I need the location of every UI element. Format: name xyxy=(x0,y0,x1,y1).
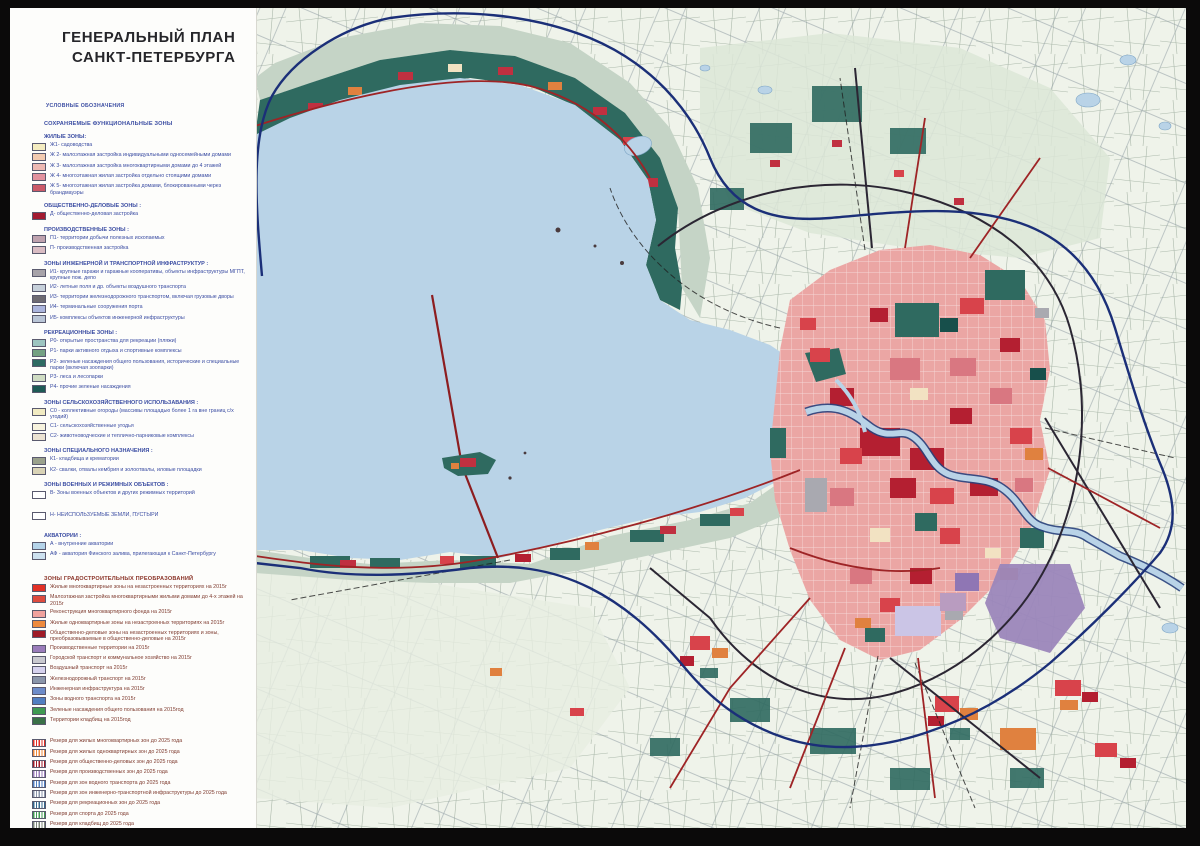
legend-item: Н- НЕИСПОЛЬЗУЕМЫЕ ЗЕМЛИ, ПУСТЫРИ xyxy=(32,512,248,521)
legend-swatch xyxy=(32,408,46,416)
legend-reserve-zones: Резерв для жилых многоквартирных зон до … xyxy=(10,738,256,828)
legend-item-label: Резерв для кладбищ до 2025 года xyxy=(50,821,134,828)
legend-swatch xyxy=(32,269,46,277)
legend-swatch xyxy=(32,697,46,705)
legend-swatch xyxy=(32,184,46,192)
legend-item-label: И1- крупные гаражи и гаражные кооператив… xyxy=(50,269,248,282)
legend-swatch xyxy=(32,433,46,441)
legend-item-label: И2- летные поля и др. объекты воздушного… xyxy=(50,284,186,291)
legend-item-label: Малоэтажная застройка многоквартирными ж… xyxy=(50,594,248,607)
legend-item: Резерв для рекреационных зон до 2025 год… xyxy=(32,800,248,809)
legend-item-label: И4- терминальные сооружения порта xyxy=(50,304,143,311)
legend-swatch xyxy=(32,666,46,674)
legend-group-title: ЖИЛЫЕ ЗОНЫ: xyxy=(44,134,246,140)
legend-item-label: П1- территории добычи полезных ископаемы… xyxy=(50,235,165,242)
legend-item: Резерв для зон водного транспорта до 202… xyxy=(32,780,248,789)
legend-item: С1- сельскохозяйственные угодья xyxy=(32,423,248,432)
legend-transformation-zones: Жилые многоквартирные зоны на незастроен… xyxy=(10,584,256,726)
legend-item: Производственные территории на 2015г xyxy=(32,645,248,654)
legend-swatch xyxy=(32,153,46,161)
legend-swatch xyxy=(32,749,46,757)
legend-group: ПРОИЗВОДСТВЕННЫЕ ЗОНЫ :П1- территории до… xyxy=(10,227,256,254)
legend-swatch xyxy=(32,212,46,220)
legend-swatch xyxy=(32,284,46,292)
legend-item: К1- кладбища и крематории xyxy=(32,456,248,465)
legend-item: Ж 3- малоэтажная застройка многоквартирн… xyxy=(32,163,248,172)
legend-swatch xyxy=(32,163,46,171)
legend-item-label: Ж 5- многоэтажная жилая застройка домами… xyxy=(50,183,248,196)
legend-item-label: Резерв для производственных зон до 2025 … xyxy=(50,769,168,776)
legend-item-label: И3- территории железнодорожного транспор… xyxy=(50,294,234,301)
legend-item: И1- крупные гаражи и гаражные кооператив… xyxy=(32,269,248,282)
legend-group: АКВАТОРИИ :А - внутренние акваторииАФ - … xyxy=(10,533,256,560)
legend-item-label: Общественно-деловые зоны на незастроенны… xyxy=(50,630,248,643)
legend-swatch xyxy=(32,457,46,465)
legend-swatch xyxy=(32,584,46,592)
legend-item: Резерв для жилых многоквартирных зон до … xyxy=(32,738,248,747)
legend-group-title: ЗОНЫ СПЕЦИАЛЬНОГО НАЗНАЧЕНИЯ : xyxy=(44,448,246,454)
legend-swatch xyxy=(32,739,46,747)
legend-item-label: С1- сельскохозяйственные угодья xyxy=(50,423,134,430)
legend-item: Резерв для жилых одноквартирных зон до 2… xyxy=(32,749,248,758)
legend-swatch xyxy=(32,676,46,684)
map-sheet: ГЕНЕРАЛЬНЫЙ ПЛАН САНКТ-ПЕТЕРБУРГА УСЛОВН… xyxy=(10,8,1186,828)
legend-swatch xyxy=(32,687,46,695)
legend-item: Малоэтажная застройка многоквартирными ж… xyxy=(32,594,248,607)
legend-item: Ж1- садоводства xyxy=(32,142,248,151)
legend-section1-title: СОХРАНЯЕМЫЕ ФУНКЦИОНАЛЬНЫЕ ЗОНЫ xyxy=(44,121,256,127)
legend-swatch xyxy=(32,645,46,653)
legend-group-title: ЗОНЫ ВОЕННЫХ И РЕЖИМНЫХ ОБЪЕКТОВ : xyxy=(44,482,246,488)
legend-group: ЗОНЫ СЕЛЬСКОХОЗЯЙСТВЕННОГО ИСПОЛЬЗАВАНИЯ… xyxy=(10,400,256,442)
legend-item: И2- летные поля и др. объекты воздушного… xyxy=(32,284,248,293)
legend-swatch xyxy=(32,595,46,603)
legend-item-label: Инженерная инфраструктура на 2015г xyxy=(50,686,145,693)
legend-item-label: Резерв для зон инженерно-транспортной ин… xyxy=(50,790,227,797)
legend-item: С0 - коллективные огороды (массивы площа… xyxy=(32,408,248,421)
legend-section2-title: ЗОНЫ ГРАДОСТРОИТЕЛЬНЫХ ПРЕОБРАЗОВАНИЙ xyxy=(44,576,256,582)
legend-functional-zones: ЖИЛЫЕ ЗОНЫ:Ж1- садоводстваЖ 2- малоэтажн… xyxy=(10,134,256,560)
legend-swatch xyxy=(32,143,46,151)
legend-item-label: Ж 3- малоэтажная застройка многоквартирн… xyxy=(50,163,221,170)
legend-item-label: Р4- прочие зеленые насаждения xyxy=(50,384,131,391)
legend-panel: ГЕНЕРАЛЬНЫЙ ПЛАН САНКТ-ПЕТЕРБУРГА УСЛОВН… xyxy=(10,8,257,828)
legend-group-title: ЗОНЫ СЕЛЬСКОХОЗЯЙСТВЕННОГО ИСПОЛЬЗАВАНИЯ… xyxy=(44,400,246,406)
legend-group-title: РЕКРЕАЦИОННЫЕ ЗОНЫ : xyxy=(44,330,246,336)
legend-swatch xyxy=(32,770,46,778)
legend-swatch xyxy=(32,295,46,303)
legend-item-label: А - внутренние акватории xyxy=(50,541,113,548)
legend-swatch xyxy=(32,630,46,638)
legend-item: Ж 5- многоэтажная жилая застройка домами… xyxy=(32,183,248,196)
legend-swatch xyxy=(32,610,46,618)
legend-item-label: П- производственная застройка xyxy=(50,245,128,252)
legend-item: Зоны водного транспорта на 2015г xyxy=(32,696,248,705)
map-title: ГЕНЕРАЛЬНЫЙ ПЛАН САНКТ-ПЕТЕРБУРГА xyxy=(62,28,248,67)
legend-swatch xyxy=(32,542,46,550)
legend-item: И3- территории железнодорожного транспор… xyxy=(32,294,248,303)
legend-swatch xyxy=(32,315,46,323)
scanned-master-plan: ГЕНЕРАЛЬНЫЙ ПЛАН САНКТ-ПЕТЕРБУРГА УСЛОВН… xyxy=(0,0,1200,846)
legend-swatch xyxy=(32,235,46,243)
map-title-line1: ГЕНЕРАЛЬНЫЙ ПЛАН xyxy=(62,28,248,48)
legend-group: ЗОНЫ ИНЖЕНЕРНОЙ И ТРАНСПОРТНОЙ ИНФРАСТРУ… xyxy=(10,261,256,323)
legend-item-label: С2- животноводческие и теплично-парников… xyxy=(50,433,194,440)
legend-item: Р1- парки активного отдыха и спортивные … xyxy=(32,348,248,357)
legend-group-title: ЗОНЫ ИНЖЕНЕРНОЙ И ТРАНСПОРТНОЙ ИНФРАСТРУ… xyxy=(44,261,246,267)
legend-group: ЗОНЫ СПЕЦИАЛЬНОГО НАЗНАЧЕНИЯ :К1- кладби… xyxy=(10,448,256,475)
legend-swatch xyxy=(32,173,46,181)
legend-item-label: К1- кладбища и крематории xyxy=(50,456,119,463)
legend-swatch xyxy=(32,801,46,809)
legend-item: Городской транспорт и коммунальное хозяй… xyxy=(32,655,248,664)
legend-item-label: Р2- зеленые насаждения общего пользовани… xyxy=(50,359,248,372)
legend-swatch xyxy=(32,780,46,788)
legend-item: Зеленые насаждения общего пользования на… xyxy=(32,707,248,716)
legend-group-title: АКВАТОРИИ : xyxy=(44,533,246,539)
legend-swatch xyxy=(32,359,46,367)
legend-item: Реконструкция многоквартирного фонда на … xyxy=(32,609,248,618)
legend-item-label: Зеленые насаждения общего пользования на… xyxy=(50,707,184,714)
legend-item-label: Резерв для спорта до 2025 года xyxy=(50,811,129,818)
legend-item-label: С0 - коллективные огороды (массивы площа… xyxy=(50,408,248,421)
legend-item: Железнодорожный транспорт на 2015г xyxy=(32,676,248,685)
legend-item-label: Резерв для рекреационных зон до 2025 год… xyxy=(50,800,160,807)
legend-item-label: Ж1- садоводства xyxy=(50,142,92,149)
legend-group: ЗОНЫ ВОЕННЫХ И РЕЖИМНЫХ ОБЪЕКТОВ :В- Зон… xyxy=(10,482,256,499)
legend-group: ОБЩЕСТВЕННО-ДЕЛОВЫЕ ЗОНЫ :Д- общественно… xyxy=(10,203,256,220)
legend-item-label: И5- комплексы объектов инженерной инфрас… xyxy=(50,315,185,322)
legend-item: С2- животноводческие и теплично-парников… xyxy=(32,433,248,442)
legend-item: Резерв для производственных зон до 2025 … xyxy=(32,769,248,778)
legend-group: Н- НЕИСПОЛЬЗУЕМЫЕ ЗЕМЛИ, ПУСТЫРИ xyxy=(10,512,256,521)
legend-swatch xyxy=(32,339,46,347)
legend-item-label: Воздушный транспорт на 2015г xyxy=(50,665,127,672)
legend-group: РЕКРЕАЦИОННЫЕ ЗОНЫ :Р0- открытые простра… xyxy=(10,330,256,392)
legend-item: Ж 2- малоэтажная застройка индивидуальны… xyxy=(32,152,248,161)
legend-swatch xyxy=(32,305,46,313)
legend-item: Воздушный транспорт на 2015г xyxy=(32,665,248,674)
legend-item-label: Железнодорожный транспорт на 2015г xyxy=(50,676,146,683)
legend-item: А - внутренние акватории xyxy=(32,541,248,550)
legend-item-label: Н- НЕИСПОЛЬЗУЕМЫЕ ЗЕМЛИ, ПУСТЫРИ xyxy=(50,512,158,519)
legend-item-label: Резерв для жилых одноквартирных зон до 2… xyxy=(50,749,180,756)
legend-item-label: Зоны водного транспорта на 2015г xyxy=(50,696,136,703)
legend-item: В- Зоны военных объектов и других режимн… xyxy=(32,490,248,499)
legend-item: Р2- зеленые насаждения общего пользовани… xyxy=(32,359,248,372)
legend-item-label: Городской транспорт и коммунальное хозяй… xyxy=(50,655,192,662)
legend-swatch xyxy=(32,790,46,798)
legend-item: П- производственная застройка xyxy=(32,245,248,254)
legend-swatch xyxy=(32,491,46,499)
legend-swatch xyxy=(32,374,46,382)
legend-item-label: Р0- открытые пространства для рекреации … xyxy=(50,338,176,345)
legend-item: Р3- леса и лесопарки xyxy=(32,374,248,383)
legend-item: Ж 4- многоэтажная жилая застройка отдель… xyxy=(32,173,248,182)
legend-swatch xyxy=(32,620,46,628)
legend-item: Жилые одноквартирные зоны на незастроенн… xyxy=(32,620,248,629)
legend-item-label: Р1- парки активного отдыха и спортивные … xyxy=(50,348,182,355)
legend-item: И5- комплексы объектов инженерной инфрас… xyxy=(32,315,248,324)
legend-item: И4- терминальные сооружения порта xyxy=(32,304,248,313)
legend-item: Территории кладбищ на 2015год xyxy=(32,717,248,726)
legend-swatch xyxy=(32,656,46,664)
legend-item-label: Резерв для общественно-деловых зон до 20… xyxy=(50,759,178,766)
legend-item: Инженерная инфраструктура на 2015г xyxy=(32,686,248,695)
legend-item: Жилые многоквартирные зоны на незастроен… xyxy=(32,584,248,593)
legend-item: К2- свалки, отвалы кембрия и золоотвалы,… xyxy=(32,467,248,476)
legend-item-label: Резерв для зон водного транспорта до 202… xyxy=(50,780,170,787)
legend-item: Резерв для спорта до 2025 года xyxy=(32,811,248,820)
legend-swatch xyxy=(32,385,46,393)
legend-item: АФ - акватория Финского залива, прилегаю… xyxy=(32,551,248,560)
legend-swatch xyxy=(32,423,46,431)
legend-item-label: Резерв для жилых многоквартирных зон до … xyxy=(50,738,182,745)
legend-swatch xyxy=(32,552,46,560)
legend-item-label: АФ - акватория Финского залива, прилегаю… xyxy=(50,551,216,558)
legend-item-label: В- Зоны военных объектов и других режимн… xyxy=(50,490,195,497)
legend-item-label: Реконструкция многоквартирного фонда на … xyxy=(50,609,172,616)
legend-swatch xyxy=(32,811,46,819)
legend-swatch xyxy=(32,821,46,828)
legend-group-title: ОБЩЕСТВЕННО-ДЕЛОВЫЕ ЗОНЫ : xyxy=(44,203,246,209)
legend-item-label: Жилые многоквартирные зоны на незастроен… xyxy=(50,584,227,591)
legend-item-label: Территории кладбищ на 2015год xyxy=(50,717,131,724)
legend-item-label: Р3- леса и лесопарки xyxy=(50,374,103,381)
legend-item-label: Ж 2- малоэтажная застройка индивидуальны… xyxy=(50,152,231,159)
legend-swatch xyxy=(32,467,46,475)
legend-item: Резерв для общественно-деловых зон до 20… xyxy=(32,759,248,768)
legend-caption: УСЛОВНЫЕ ОБОЗНАЧЕНИЯ xyxy=(46,103,256,109)
legend-item-label: Д- общественно-деловая застройка xyxy=(50,211,138,218)
legend-item: Р0- открытые пространства для рекреации … xyxy=(32,338,248,347)
legend-item: Общественно-деловые зоны на незастроенны… xyxy=(32,630,248,643)
legend-item-label: Ж 4- многоэтажная жилая застройка отдель… xyxy=(50,173,211,180)
legend-swatch xyxy=(32,760,46,768)
legend-item-label: К2- свалки, отвалы кембрия и золоотвалы,… xyxy=(50,467,202,474)
legend-swatch xyxy=(32,707,46,715)
legend-item: Д- общественно-деловая застройка xyxy=(32,211,248,220)
legend-group: ЖИЛЫЕ ЗОНЫ:Ж1- садоводстваЖ 2- малоэтажн… xyxy=(10,134,256,196)
legend-swatch xyxy=(32,512,46,520)
legend-group-title: ПРОИЗВОДСТВЕННЫЕ ЗОНЫ : xyxy=(44,227,246,233)
legend-swatch xyxy=(32,717,46,725)
legend-item: Р4- прочие зеленые насаждения xyxy=(32,384,248,393)
map-title-line2: САНКТ-ПЕТЕРБУРГА xyxy=(72,48,248,68)
legend-swatch xyxy=(32,246,46,254)
airport-zone xyxy=(895,606,941,636)
legend-item-label: Производственные территории на 2015г xyxy=(50,645,149,652)
legend-item-label: Жилые одноквартирные зоны на незастроенн… xyxy=(50,620,224,627)
legend-item: П1- территории добычи полезных ископаемы… xyxy=(32,235,248,244)
legend-item: Резерв для зон инженерно-транспортной ин… xyxy=(32,790,248,799)
legend-item: Резерв для кладбищ до 2025 года xyxy=(32,821,248,828)
legend-swatch xyxy=(32,349,46,357)
